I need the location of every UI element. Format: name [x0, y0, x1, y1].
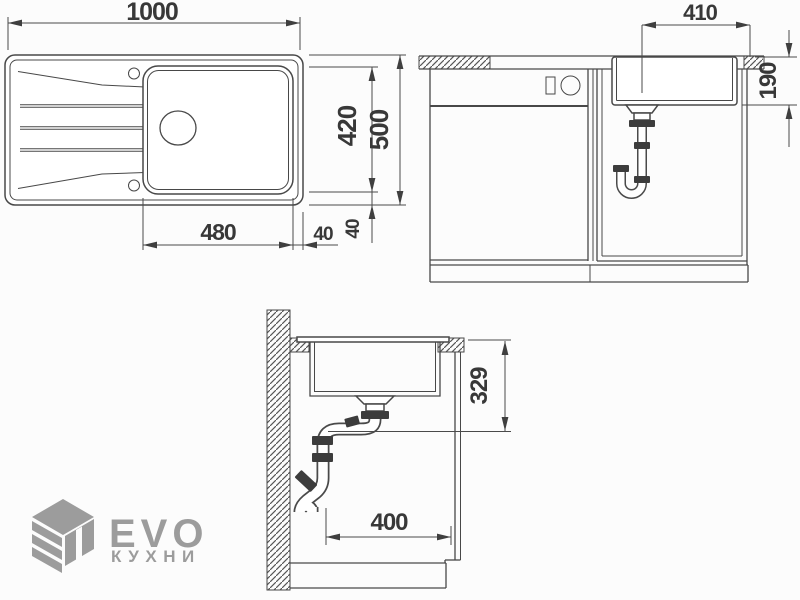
wall-hatched: [267, 310, 290, 590]
front-view: 410 190: [419, 0, 797, 282]
section-view: 329 400: [267, 310, 511, 590]
dim-plan-width-label: 1000: [126, 0, 178, 26]
dim-front-bowl-height-label: 190: [755, 62, 782, 100]
bowl-outline-front: [612, 57, 737, 105]
dim-plan-width: 1000: [8, 0, 300, 50]
dim-section-cabinet-depth: 400: [326, 508, 451, 545]
handle-circle-icon: [561, 76, 580, 95]
sink-rim-section: [297, 337, 449, 342]
cube-logo-icon: [32, 499, 94, 573]
dim-plan-depths: 500 420 40: [309, 55, 406, 243]
dim-plan-offset-right-label: 40: [313, 224, 333, 245]
drain-trap-front: [613, 105, 658, 194]
logo-subtitle-text: КУХНИ: [111, 547, 201, 566]
dim-plan-offset-bottom-label: 40: [343, 219, 364, 239]
dim-front-bowl-width-label: 410: [683, 0, 717, 25]
dim-section-cabinet-depth-label: 400: [370, 509, 408, 536]
drawing-canvas: 1000 500 420 40 480: [0, 0, 800, 600]
dim-plan-bowl-depth-label: 420: [332, 105, 362, 146]
handle-rect-icon: [546, 77, 555, 94]
drain-trap-section: [295, 396, 394, 512]
bowl-outline-section: [310, 342, 440, 396]
plan-view: 1000 500 420 40 480: [5, 0, 406, 250]
cabinet-plinth: [430, 265, 748, 282]
dim-section-drain-height-label: 329: [466, 367, 493, 405]
cabinet-side-panel: [290, 352, 461, 588]
dim-plan-total-depth-label: 500: [364, 109, 394, 150]
bowl-outline-plan: [143, 66, 293, 194]
dim-plan-bowl-width: 480 40: [143, 198, 338, 250]
dim-plan-bowl-width-label: 480: [200, 219, 236, 245]
brand-logo: EVO КУХНИ: [32, 499, 208, 573]
sink-technical-drawing-page: 1000 500 420 40 480: [0, 0, 800, 600]
